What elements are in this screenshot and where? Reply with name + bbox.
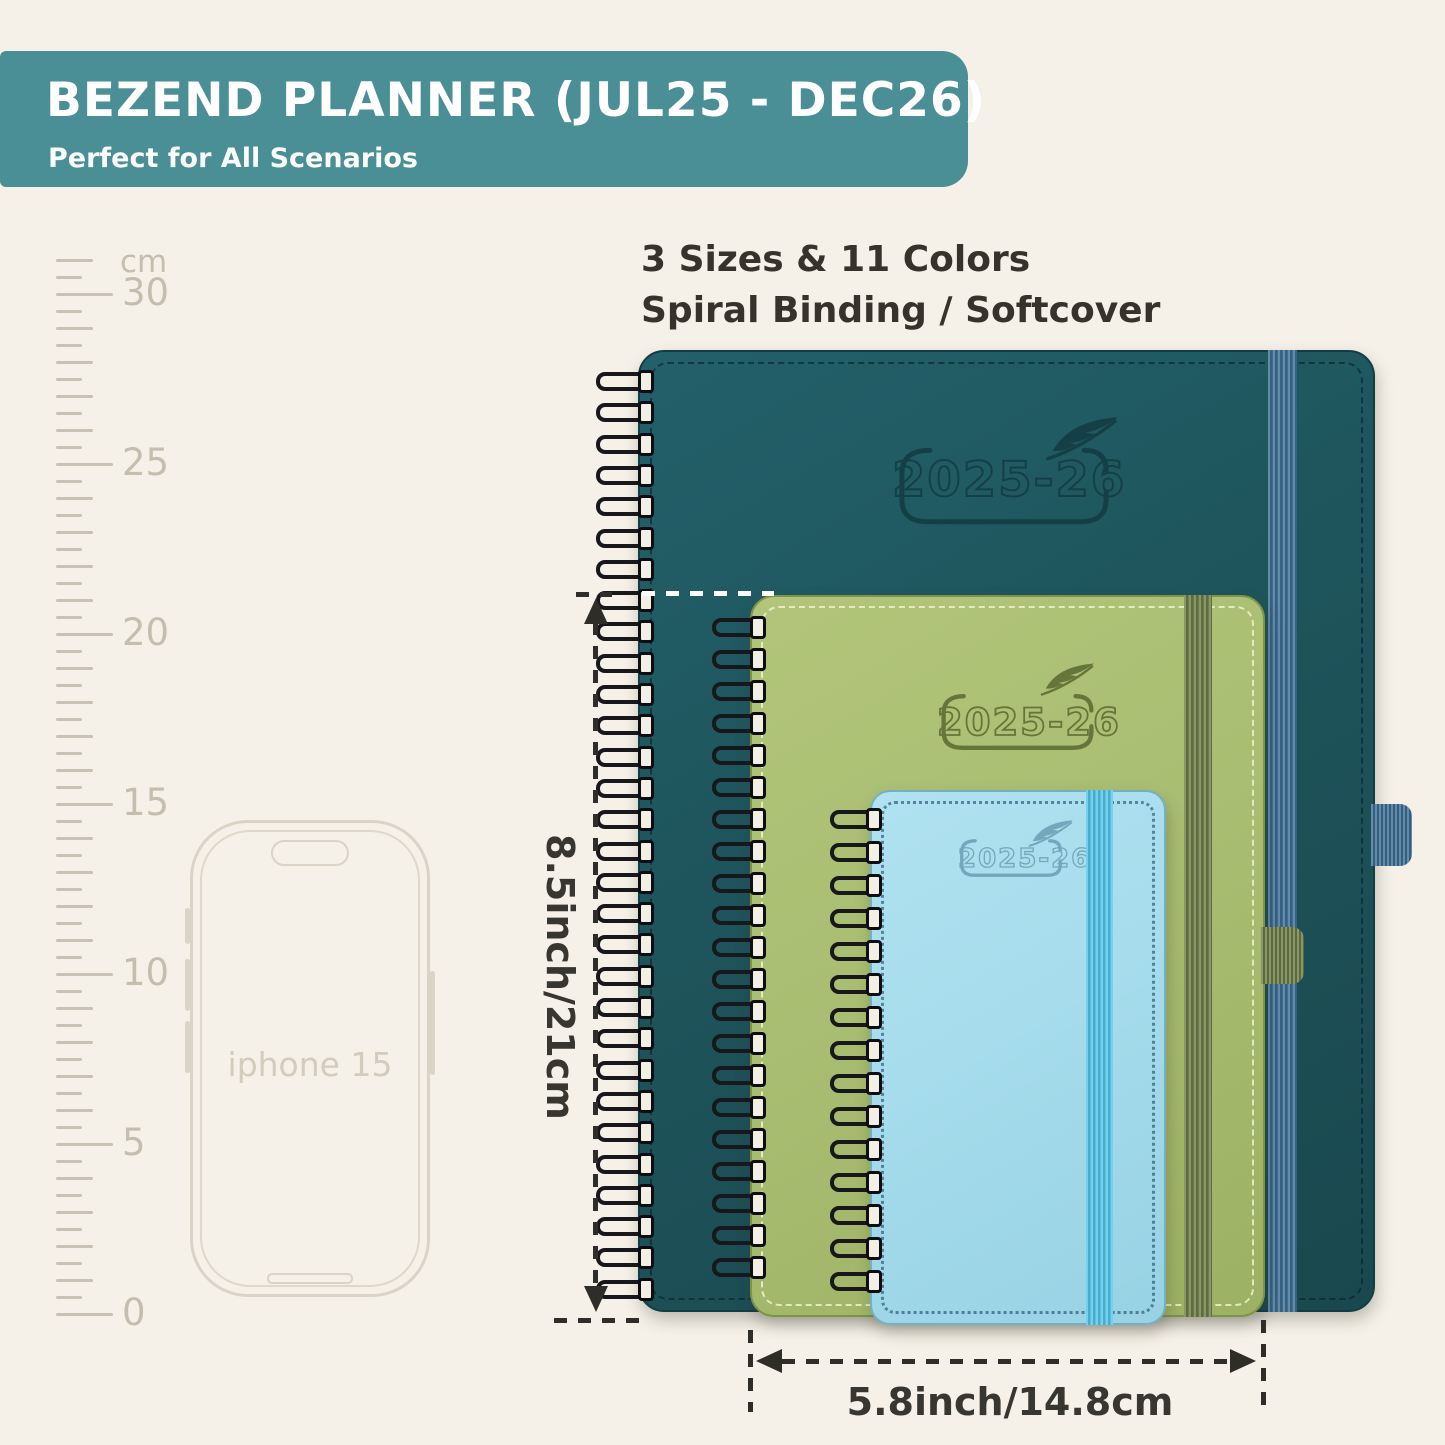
spiral-coil bbox=[596, 779, 654, 798]
ruler-number: 0 bbox=[122, 1291, 146, 1334]
spiral-coil bbox=[596, 1123, 654, 1142]
ruler-tick bbox=[56, 361, 93, 364]
spiral-coil bbox=[830, 1041, 882, 1060]
dynamic-island bbox=[271, 840, 349, 866]
ruler-tick bbox=[56, 1211, 93, 1214]
spiral-coil bbox=[830, 942, 882, 961]
width-extent-left bbox=[748, 1330, 753, 1412]
iphone-label: iphone 15 bbox=[193, 1045, 427, 1084]
ruler-tick bbox=[56, 1143, 113, 1146]
spiral-coil bbox=[830, 1008, 882, 1027]
power-button bbox=[430, 971, 435, 1075]
ruler-number: 5 bbox=[122, 1121, 146, 1164]
height-extent-top-overlay bbox=[642, 591, 774, 596]
ruler-tick bbox=[56, 803, 113, 806]
ruler-tick bbox=[56, 259, 93, 262]
spiral-coil bbox=[830, 1074, 882, 1093]
feature-text: 3 Sizes & 11 Colors Spiral Binding / Sof… bbox=[641, 234, 1160, 336]
elastic-band-medium bbox=[1184, 595, 1212, 1317]
ruler-tick bbox=[56, 922, 82, 925]
ruler-tick bbox=[56, 752, 82, 755]
spiral-coil bbox=[596, 998, 654, 1017]
ruler-number: 25 bbox=[122, 441, 169, 484]
ruler-tick bbox=[56, 1313, 113, 1316]
spiral-coil bbox=[712, 1194, 766, 1213]
ruler-number: 30 bbox=[122, 271, 169, 314]
width-dim-label: 5.8inch/14.8cm bbox=[830, 1380, 1190, 1424]
ruler-tick bbox=[56, 327, 93, 330]
product-image: BEZEND PLANNER (JUL25 - DEC26) Perfect f… bbox=[0, 0, 1445, 1445]
spiral-coil bbox=[830, 1173, 882, 1192]
height-arrow-down bbox=[584, 1286, 608, 1312]
ruler-tick bbox=[56, 871, 93, 874]
ruler-tick bbox=[56, 854, 82, 857]
spiral-coil bbox=[596, 1029, 654, 1048]
height-dim-label: 8.5inch/21cm bbox=[536, 834, 584, 1074]
spiral-coil bbox=[712, 746, 766, 765]
spiral-coil bbox=[712, 714, 766, 733]
ruler-tick bbox=[56, 820, 82, 823]
ruler-tick bbox=[56, 429, 93, 432]
spiral-coil bbox=[712, 842, 766, 861]
ruler-tick bbox=[56, 684, 82, 687]
spiral-coil bbox=[596, 904, 654, 923]
ruler-tick bbox=[56, 1262, 82, 1265]
ruler-tick bbox=[56, 1041, 93, 1044]
spiral-coil bbox=[712, 650, 766, 669]
spiral-coil bbox=[596, 842, 654, 861]
ruler-tick bbox=[56, 1160, 82, 1163]
spiral-coil bbox=[596, 1092, 654, 1111]
product-title: BEZEND PLANNER (JUL25 - DEC26) bbox=[46, 73, 986, 128]
elastic-band-small bbox=[1086, 790, 1113, 1325]
ruler-tick bbox=[56, 548, 82, 551]
width-arrow-right bbox=[1230, 1349, 1256, 1373]
feature-line-sizes: 3 Sizes & 11 Colors bbox=[641, 234, 1160, 285]
ruler-tick bbox=[56, 956, 82, 959]
spiral-coil bbox=[712, 1162, 766, 1181]
spiral-coil bbox=[712, 1226, 766, 1245]
spiral-coil bbox=[712, 810, 766, 829]
product-subtitle: Perfect for All Scenarios bbox=[48, 143, 418, 174]
spiral-coil bbox=[712, 1258, 766, 1277]
spiral-coil bbox=[596, 1186, 654, 1205]
ruler-tick bbox=[56, 310, 82, 313]
height-extent-bottom bbox=[554, 1318, 640, 1323]
spiral-coil bbox=[712, 874, 766, 893]
ruler-tick bbox=[56, 276, 82, 279]
spiral-coil bbox=[830, 975, 882, 994]
ruler-tick bbox=[56, 735, 93, 738]
year-emboss: 2025-26 bbox=[937, 701, 1100, 744]
ruler-tick bbox=[56, 531, 93, 534]
ruler-tick bbox=[56, 769, 93, 772]
spiral-coil bbox=[712, 1034, 766, 1053]
feather-icon bbox=[1040, 661, 1098, 697]
ruler-tick bbox=[56, 344, 82, 347]
feature-line-binding: Spiral Binding / Softcover bbox=[641, 285, 1160, 336]
spiral-coil bbox=[830, 909, 882, 928]
ruler-tick bbox=[56, 718, 82, 721]
ruler-tick bbox=[56, 667, 93, 670]
ruler-tick bbox=[56, 1296, 82, 1299]
ruler-tick bbox=[56, 1279, 93, 1282]
spiral-coil bbox=[830, 1272, 882, 1291]
ruler-tick bbox=[56, 990, 82, 993]
spiral-coil bbox=[596, 748, 654, 767]
volume-down-button bbox=[185, 1021, 190, 1073]
spiral-coil bbox=[712, 1002, 766, 1021]
spiral-coil bbox=[596, 372, 654, 391]
feather-icon bbox=[1028, 818, 1076, 848]
spiral-coil bbox=[712, 682, 766, 701]
spiral-coil bbox=[830, 1206, 882, 1225]
ruler-tick bbox=[56, 497, 93, 500]
ruler-number: 20 bbox=[122, 611, 169, 654]
height-arrow-up bbox=[584, 598, 608, 624]
ruler-tick bbox=[56, 395, 93, 398]
ruler-tick bbox=[56, 463, 113, 466]
spiral-coil bbox=[596, 1155, 654, 1174]
planner-small: 2025-26 bbox=[870, 790, 1166, 1325]
speaker-slot bbox=[267, 1273, 353, 1284]
height-extent-top bbox=[576, 592, 612, 597]
ruler-tick bbox=[56, 582, 82, 585]
ruler-tick bbox=[56, 378, 82, 381]
ruler-tick bbox=[56, 1075, 93, 1078]
spiral-coil bbox=[596, 435, 654, 454]
ruler-tick bbox=[56, 412, 82, 415]
ruler-tick bbox=[56, 973, 113, 976]
spiral-coil bbox=[596, 403, 654, 422]
spiral-coil bbox=[596, 529, 654, 548]
spiral-coil bbox=[596, 716, 654, 735]
spiral-coil bbox=[712, 906, 766, 925]
spiral-coil bbox=[596, 466, 654, 485]
ruler-tick bbox=[56, 1058, 82, 1061]
spiral-coil bbox=[596, 967, 654, 986]
year-emboss: 2025-26 bbox=[958, 844, 1066, 874]
ruler-tick bbox=[56, 650, 82, 653]
spiral-coil bbox=[596, 654, 654, 673]
ruler-tick bbox=[56, 1024, 82, 1027]
spiral-coil bbox=[596, 935, 654, 954]
spiral-coil bbox=[596, 1248, 654, 1267]
pen-loop-large bbox=[1371, 804, 1412, 866]
width-extent-right bbox=[1261, 1320, 1266, 1414]
spiral-coil bbox=[830, 1239, 882, 1258]
spiral-coil bbox=[712, 1130, 766, 1149]
ruler-tick bbox=[56, 1109, 93, 1112]
ruler-tick bbox=[56, 888, 82, 891]
ruler-tick bbox=[56, 514, 82, 517]
pen-loop-medium bbox=[1261, 927, 1304, 984]
ruler-number: 10 bbox=[122, 951, 169, 994]
action-button bbox=[185, 908, 190, 944]
spiral-coil bbox=[596, 1061, 654, 1080]
iphone-outline: iphone 15 bbox=[190, 820, 430, 1297]
width-dim-line bbox=[782, 1359, 1232, 1364]
spiral-coil bbox=[830, 810, 882, 829]
spiral-coil bbox=[712, 778, 766, 797]
spiral-coil bbox=[712, 938, 766, 957]
ruler-tick bbox=[56, 1228, 82, 1231]
volume-up-button bbox=[185, 959, 190, 1011]
spiral-coil bbox=[830, 1107, 882, 1126]
elastic-band-large bbox=[1268, 350, 1297, 1312]
height-dim-line bbox=[593, 622, 598, 1288]
spiral-coil bbox=[596, 622, 654, 641]
width-arrow-left bbox=[756, 1349, 782, 1373]
ruler-tick bbox=[56, 565, 93, 568]
spiral-coil bbox=[712, 970, 766, 989]
ruler-tick bbox=[56, 616, 82, 619]
title-banner: BEZEND PLANNER (JUL25 - DEC26) Perfect f… bbox=[0, 51, 968, 187]
spiral-coil bbox=[712, 618, 766, 637]
spiral-coil bbox=[830, 843, 882, 862]
ruler-tick bbox=[56, 1007, 93, 1010]
spiral-coil bbox=[596, 497, 654, 516]
spiral-coil bbox=[830, 1140, 882, 1159]
ruler-tick bbox=[56, 905, 93, 908]
ruler-tick bbox=[56, 786, 82, 789]
ruler-tick bbox=[56, 293, 113, 296]
spiral-coil bbox=[712, 1066, 766, 1085]
ruler-tick bbox=[56, 939, 93, 942]
spiral-coil bbox=[830, 876, 882, 895]
ruler-tick bbox=[56, 599, 93, 602]
ruler-tick bbox=[56, 701, 93, 704]
ruler-tick bbox=[56, 837, 93, 840]
ruler-tick bbox=[56, 446, 82, 449]
spiral-coil bbox=[596, 560, 654, 579]
ruler-tick bbox=[56, 1245, 93, 1248]
ruler-number: 15 bbox=[122, 781, 169, 824]
ruler-tick bbox=[56, 1177, 93, 1180]
spiral-coil bbox=[596, 685, 654, 704]
feather-icon bbox=[1045, 414, 1123, 462]
spiral-coil bbox=[712, 1098, 766, 1117]
ruler-tick bbox=[56, 1126, 82, 1129]
ruler-tick bbox=[56, 1194, 82, 1197]
spiral-coil bbox=[596, 1217, 654, 1236]
ruler-tick bbox=[56, 633, 113, 636]
ruler-tick bbox=[56, 480, 82, 483]
spiral-coil bbox=[596, 810, 654, 829]
ruler-tick bbox=[56, 1092, 82, 1095]
spiral-coil bbox=[596, 873, 654, 892]
